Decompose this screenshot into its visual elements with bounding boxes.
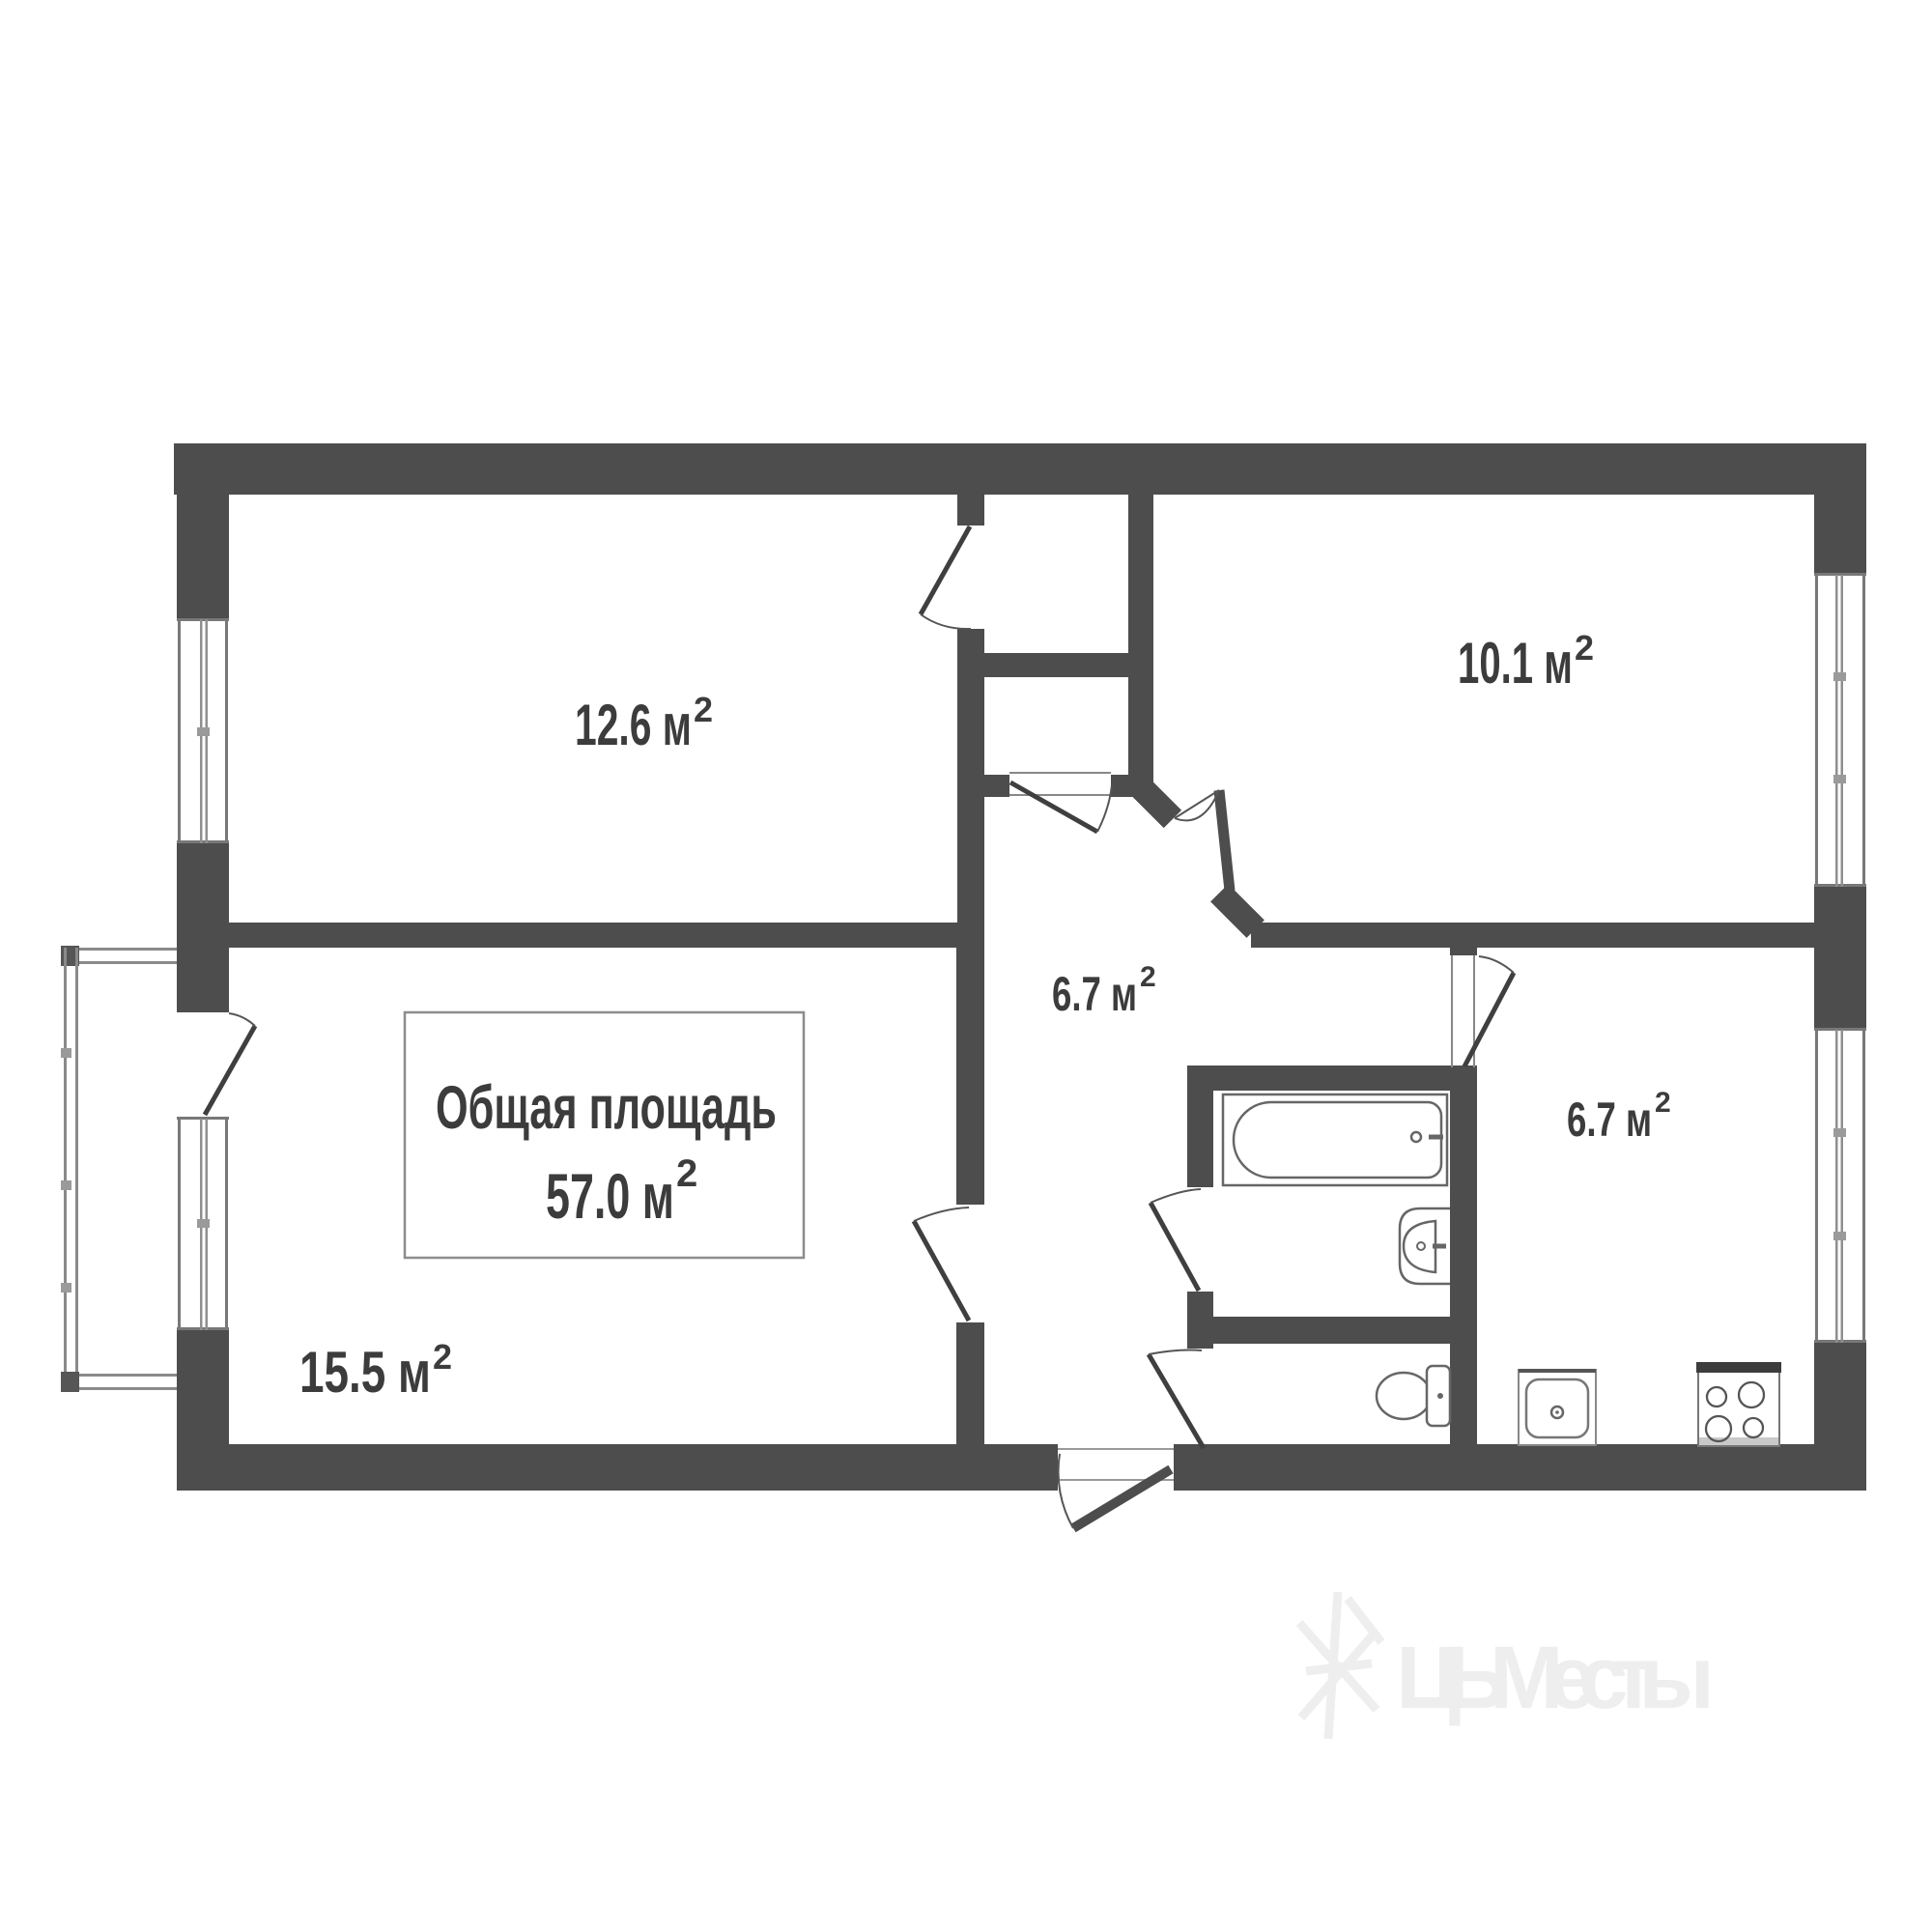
svg-text:6.7 м: 6.7 м: [1052, 967, 1137, 1021]
svg-text:6.7 м: 6.7 м: [1567, 1093, 1652, 1147]
svg-text:2: 2: [694, 690, 713, 729]
svg-text:57.0 м: 57.0 м: [546, 1160, 674, 1232]
svg-text:2: 2: [1575, 628, 1594, 668]
svg-text:2: 2: [1140, 961, 1156, 993]
svg-text:2: 2: [1655, 1087, 1671, 1119]
svg-text:2: 2: [676, 1152, 697, 1195]
svg-text:ЦЬМесты: ЦЬМесты: [1396, 1629, 1715, 1727]
svg-text:2: 2: [433, 1337, 452, 1377]
svg-text:12.6 м: 12.6 м: [575, 693, 692, 757]
svg-text:10.1 м: 10.1 м: [1458, 631, 1573, 696]
svg-text:15.5 м: 15.5 м: [299, 1340, 431, 1405]
svg-text:Общая площадь: Общая площадь: [436, 1074, 777, 1142]
